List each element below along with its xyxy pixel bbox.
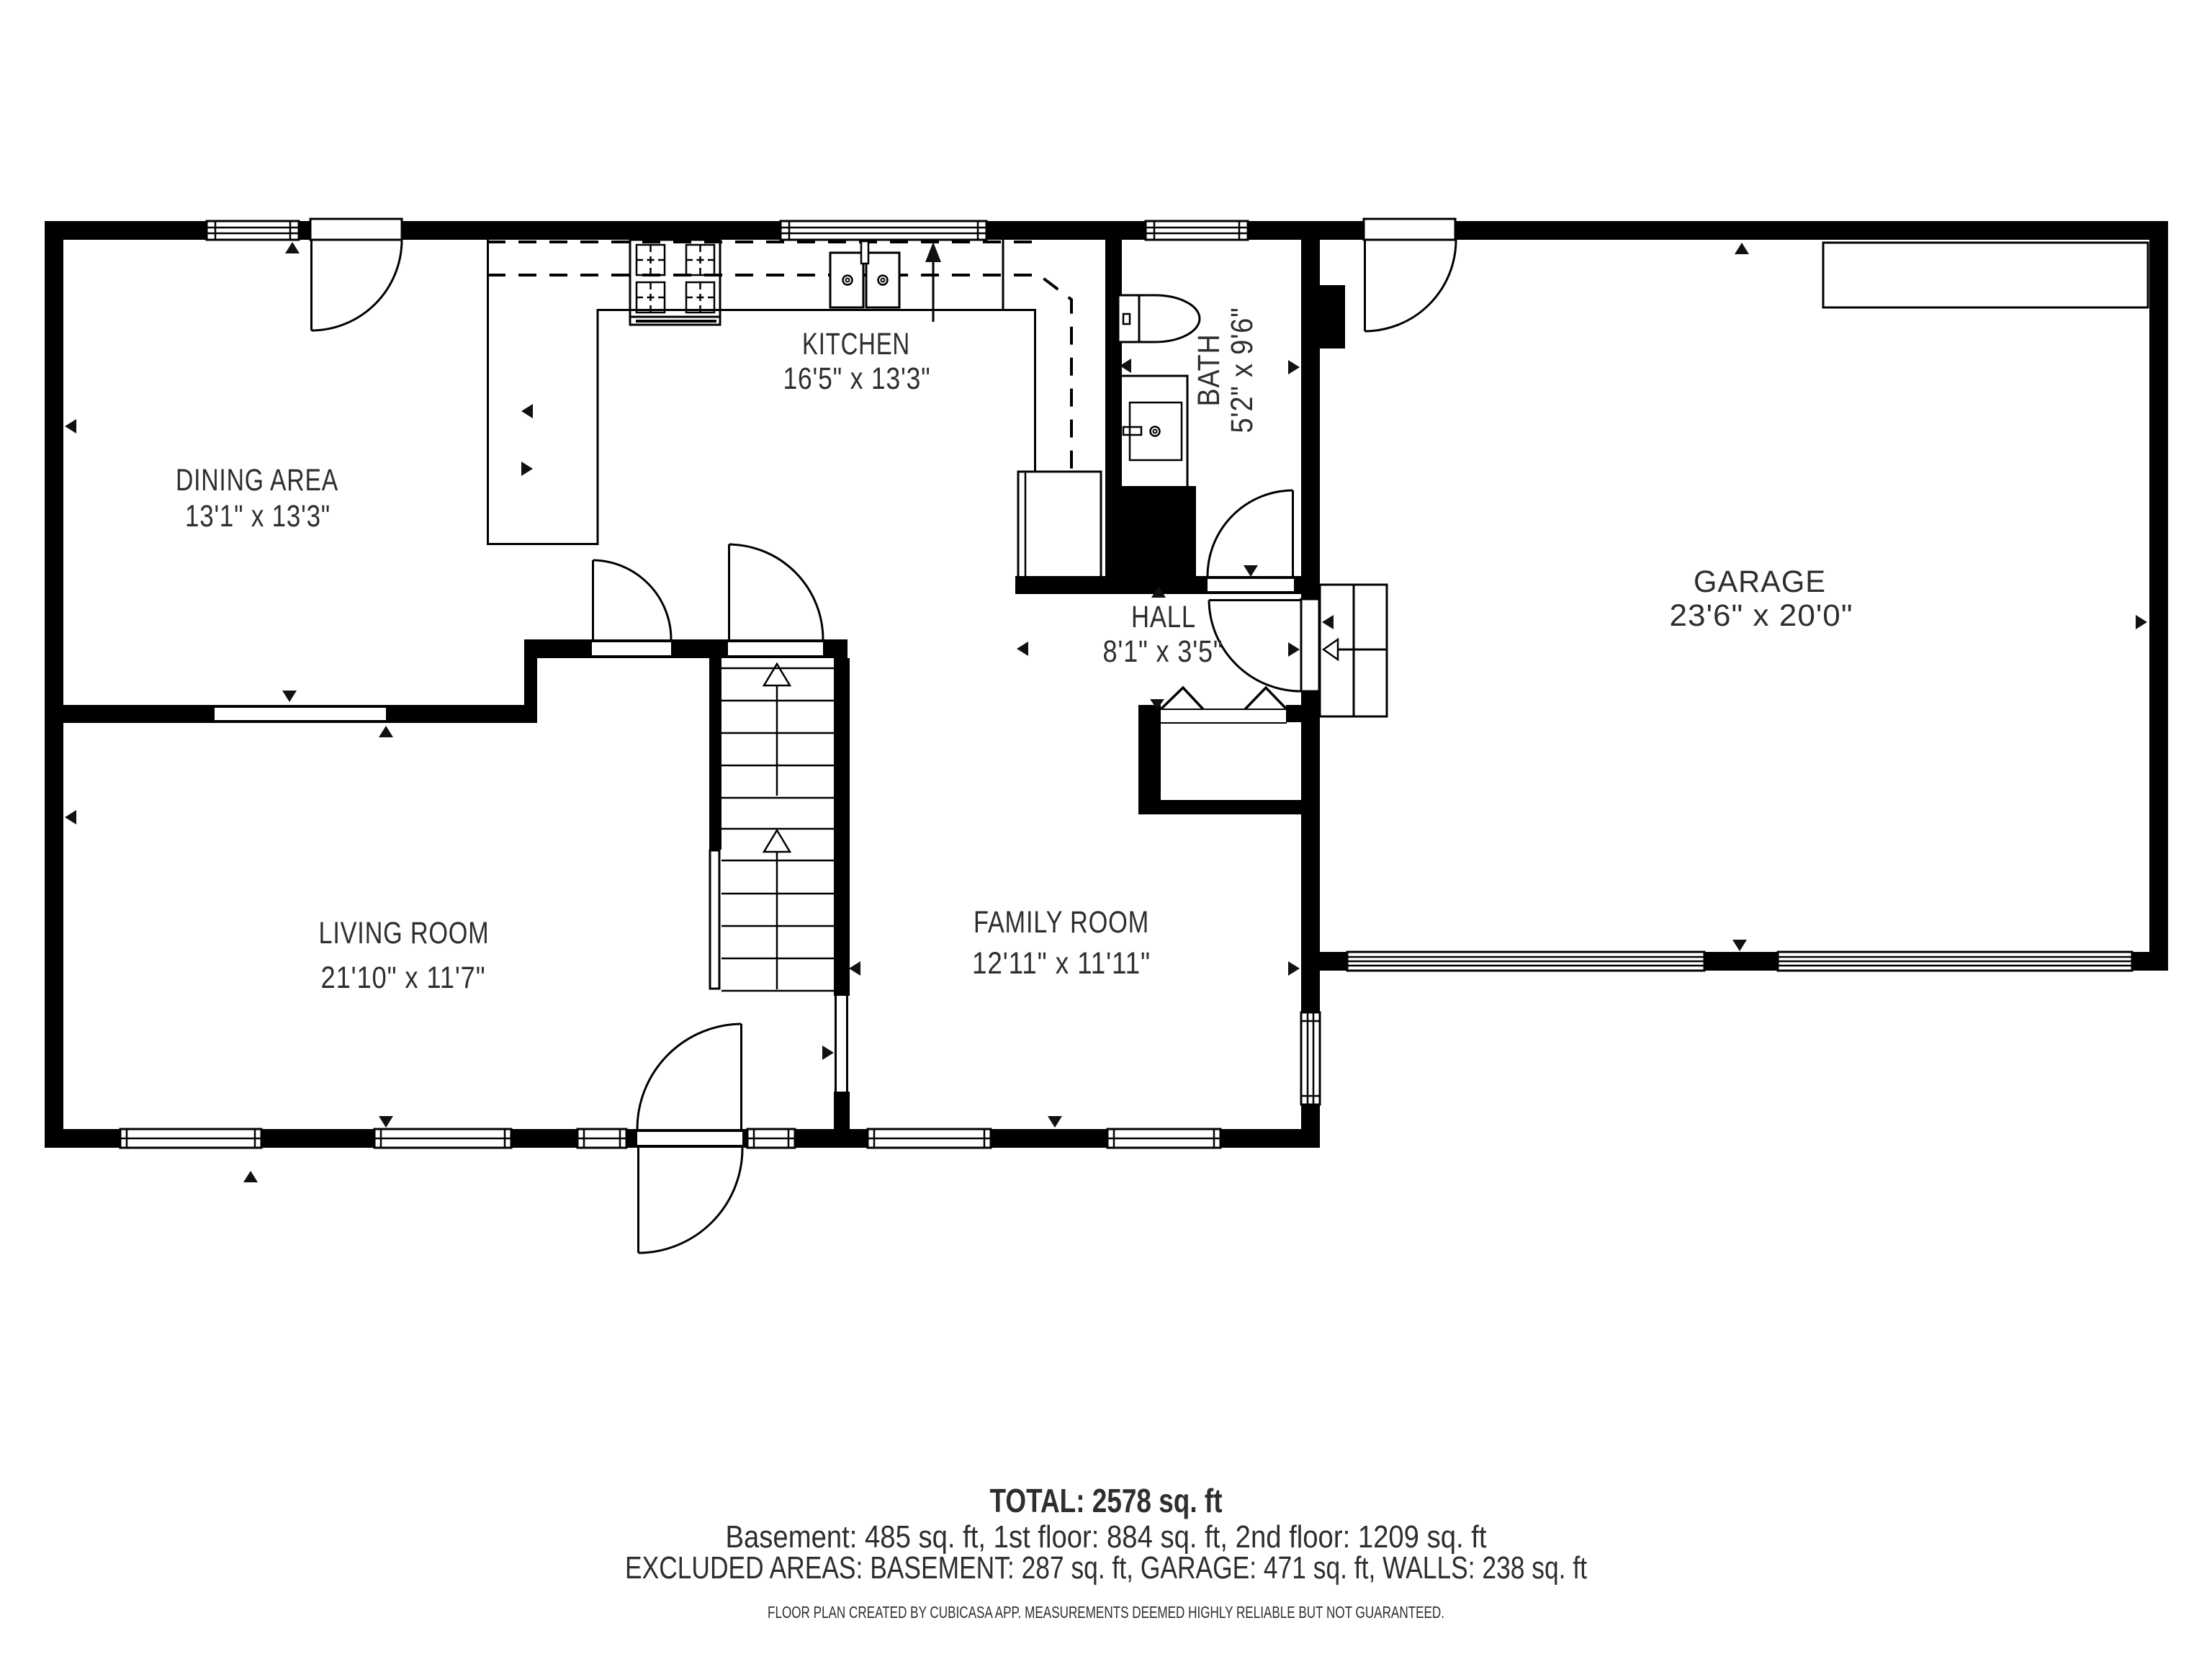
svg-text:HALL: HALL bbox=[1131, 600, 1196, 634]
svg-text:EXCLUDED AREAS: BASEMENT: 287: EXCLUDED AREAS: BASEMENT: 287 sq. ft, GA… bbox=[625, 1550, 1587, 1586]
svg-text:23'6" x 20'0": 23'6" x 20'0" bbox=[1670, 598, 1853, 633]
svg-text:TOTAL: 2578 sq. ft: TOTAL: 2578 sq. ft bbox=[990, 1482, 1223, 1519]
svg-text:13'1" x 13'3": 13'1" x 13'3" bbox=[185, 499, 331, 534]
svg-text:BATH: BATH bbox=[1192, 334, 1226, 407]
svg-text:Basement: 485 sq. ft, 1st floo: Basement: 485 sq. ft, 1st floor: 884 sq.… bbox=[726, 1519, 1487, 1555]
svg-text:KITCHEN: KITCHEN bbox=[802, 327, 910, 361]
svg-text:16'5" x 13'3": 16'5" x 13'3" bbox=[783, 361, 931, 396]
svg-text:5'2" x 9'6": 5'2" x 9'6" bbox=[1225, 307, 1259, 433]
svg-text:FLOOR PLAN CREATED BY CUBICASA: FLOOR PLAN CREATED BY CUBICASA APP. MEAS… bbox=[768, 1603, 1444, 1622]
svg-text:8'1" x 3'5": 8'1" x 3'5" bbox=[1103, 634, 1223, 669]
svg-text:21'10" x 11'7": 21'10" x 11'7" bbox=[321, 961, 486, 995]
svg-text:GARAGE: GARAGE bbox=[1694, 565, 1826, 599]
svg-text:FAMILY ROOM: FAMILY ROOM bbox=[974, 905, 1149, 940]
svg-text:LIVING ROOM: LIVING ROOM bbox=[319, 916, 490, 950]
svg-text:DINING AREA: DINING AREA bbox=[176, 463, 338, 498]
svg-text:12'11" x 11'11": 12'11" x 11'11" bbox=[972, 946, 1151, 981]
